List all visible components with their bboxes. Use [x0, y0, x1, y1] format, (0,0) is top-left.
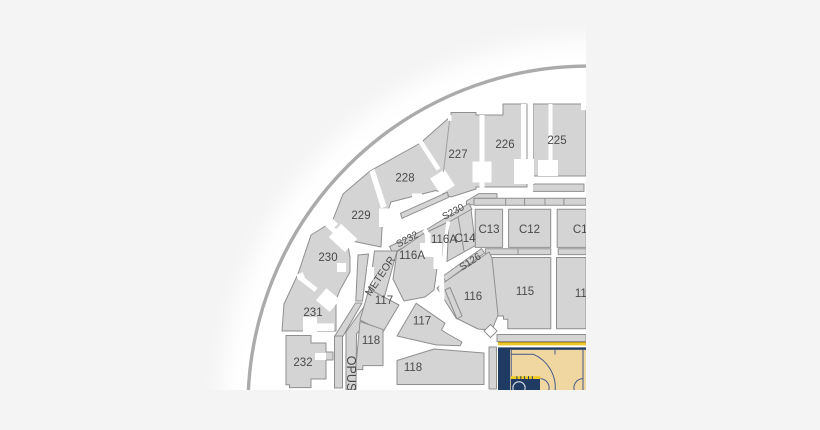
svg-text:116A: 116A — [399, 250, 425, 262]
svg-text:116A: 116A — [431, 234, 457, 246]
svg-text:231: 231 — [303, 307, 322, 319]
svg-text:227: 227 — [448, 149, 467, 161]
svg-text:225: 225 — [547, 135, 566, 147]
svg-text:230: 230 — [318, 252, 337, 264]
svg-text:118: 118 — [404, 362, 422, 374]
svg-text:228: 228 — [395, 173, 414, 185]
svg-text:C13: C13 — [478, 224, 499, 236]
svg-text:229: 229 — [351, 210, 370, 222]
svg-text:115: 115 — [516, 286, 534, 298]
svg-text:117: 117 — [413, 316, 431, 328]
svg-text:118: 118 — [362, 335, 380, 347]
svg-text:C14: C14 — [454, 233, 476, 245]
svg-text:116: 116 — [464, 291, 482, 303]
svg-text:232: 232 — [293, 357, 312, 369]
svg-text:C12: C12 — [519, 224, 540, 236]
svg-text:OPUS: OPUS — [344, 356, 358, 391]
svg-text:117: 117 — [375, 295, 393, 307]
svg-text:226: 226 — [495, 139, 514, 151]
